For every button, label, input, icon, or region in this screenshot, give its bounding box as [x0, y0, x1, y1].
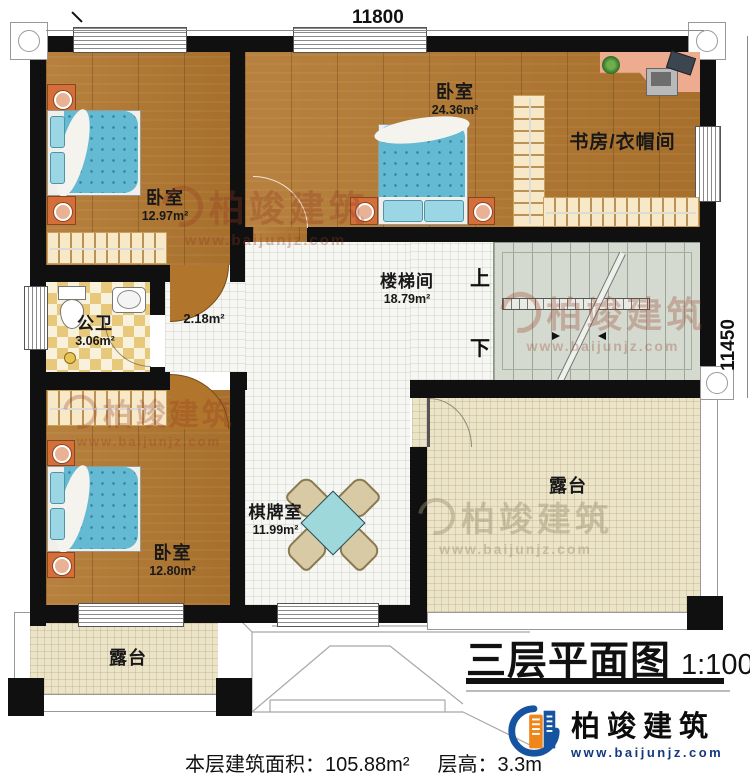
room-label-study: 书房/衣帽间 [540, 132, 705, 154]
title-underline-thick [466, 678, 724, 684]
dim-line-right [747, 36, 748, 398]
window-chess-bottom [277, 603, 379, 627]
wall-under-hall [230, 372, 247, 390]
sink-basin [117, 290, 141, 309]
nightstand [47, 84, 76, 113]
room-label-hallway: 2.18m² [172, 312, 236, 327]
room-area: 12.80m² [125, 564, 220, 578]
stairs-arrow-right-icon [552, 332, 560, 340]
footer-height-label: 层高： [438, 754, 498, 776]
room-name: 卧室 [105, 188, 225, 209]
pillow [424, 200, 464, 222]
room-label-bedroom-tl: 卧室 12.97m² [105, 188, 225, 223]
toilet-tank [58, 286, 86, 300]
door-bedroom-bl-terrace [78, 603, 184, 627]
column-terrace-bl-left [8, 678, 44, 716]
room-label-terrace-bottom: 露台 [93, 648, 163, 669]
terrace-right-rail-right [700, 398, 718, 614]
closet [47, 390, 167, 426]
closet [543, 197, 699, 227]
nightstand [468, 197, 495, 225]
pillow [50, 152, 65, 184]
room-area: 18.79m² [366, 292, 448, 306]
bedroom-tr-door-threshold [253, 227, 307, 242]
axis-marker-top-left [10, 22, 48, 60]
room-name: 卧室 [125, 543, 220, 564]
wall-stairs-top [307, 227, 716, 242]
room-label-stairwell: 楼梯间 18.79m² [366, 272, 448, 306]
room-name: 公卫 [55, 314, 135, 334]
terrace-bottom-rail-bottom [14, 694, 234, 712]
nightstand [47, 196, 76, 225]
stairs-arrow-left-icon [598, 332, 606, 340]
column-terrace-bl-right [216, 678, 252, 716]
wall-right [700, 36, 716, 398]
dim-top: 11800 [352, 7, 404, 29]
wall-bathroom-right [150, 282, 165, 315]
stairs-down-label: 下 [470, 332, 490, 361]
pillow [50, 472, 65, 504]
nightstand [47, 552, 75, 578]
wall-under-bedroom-tl [30, 265, 170, 282]
terrace-door-leaf [427, 398, 430, 447]
footer-area-value: 105.88m² [325, 754, 410, 776]
pillow [50, 116, 65, 148]
stairs-handrail [502, 298, 650, 310]
window-left [24, 286, 48, 350]
wall-bedroom-bl-bottom-left [30, 605, 78, 623]
room-name: 楼梯间 [366, 272, 448, 292]
column-terrace-br [687, 596, 723, 630]
room-label-terrace-right: 露台 [533, 476, 603, 497]
wall-bedrooms-divider [230, 36, 245, 282]
room-area: 12.97m² [105, 209, 225, 223]
plant-icon [602, 56, 620, 74]
footer-height-value: 3.3m [498, 754, 542, 776]
wall-under-bedroom-tl-2 [230, 265, 245, 282]
dim-right: 11450 [718, 310, 740, 380]
pillow [383, 200, 423, 222]
closet [47, 232, 167, 264]
wall-chess-bottom-left [230, 605, 277, 623]
wall-chess-terrace [410, 447, 427, 612]
room-name: 书房/衣帽间 [540, 132, 705, 154]
nightstand [350, 197, 378, 225]
wall-chess-bottom-right [377, 605, 427, 623]
bedroom-bl-door [170, 374, 229, 429]
pillow [50, 508, 65, 540]
footer-area-label: 本层建筑面积： [185, 754, 325, 776]
room-label-chess: 棋牌室 11.99m² [233, 503, 318, 537]
logo-name: 柏竣建筑 [571, 703, 723, 745]
room-label-bedroom-bl: 卧室 12.80m² [125, 543, 220, 578]
room-name: 卧室 [400, 82, 510, 103]
floor-drain-icon [64, 352, 76, 364]
stairs-up-label: 上 [470, 262, 490, 291]
wall-stairs-top-stub [245, 227, 253, 242]
room-name: 棋牌室 [233, 503, 318, 523]
nightstand [47, 440, 75, 466]
computer-screen-icon [651, 72, 671, 86]
dim-tick-icon [71, 11, 82, 22]
room-area: 3.06m² [55, 334, 135, 348]
room-area: 11.99m² [233, 523, 318, 537]
floor-plan: 上 下 [0, 0, 750, 779]
room-label-bathroom: 公卫 3.06m² [55, 314, 135, 348]
wall-under-bathroom [30, 372, 170, 390]
room-name: 露台 [533, 476, 603, 497]
wall-stairs-bottom [410, 380, 716, 398]
room-name: 露台 [93, 648, 163, 669]
title-underline-thin [466, 690, 730, 692]
footer-stats: 本层建筑面积：105.88m²层高：3.3m [185, 748, 542, 777]
closet-divider [513, 95, 545, 227]
dim-line-top [46, 30, 704, 31]
room-label-bedroom-tr: 卧室 24.36m² [400, 82, 510, 117]
terrace-door-gap [412, 398, 427, 447]
logo-url: www.baijunjz.com [571, 745, 723, 760]
wall-bedroom-bl-bottom-right [182, 605, 232, 623]
room-area: 24.36m² [400, 103, 510, 117]
room-area: 2.18m² [172, 312, 236, 327]
